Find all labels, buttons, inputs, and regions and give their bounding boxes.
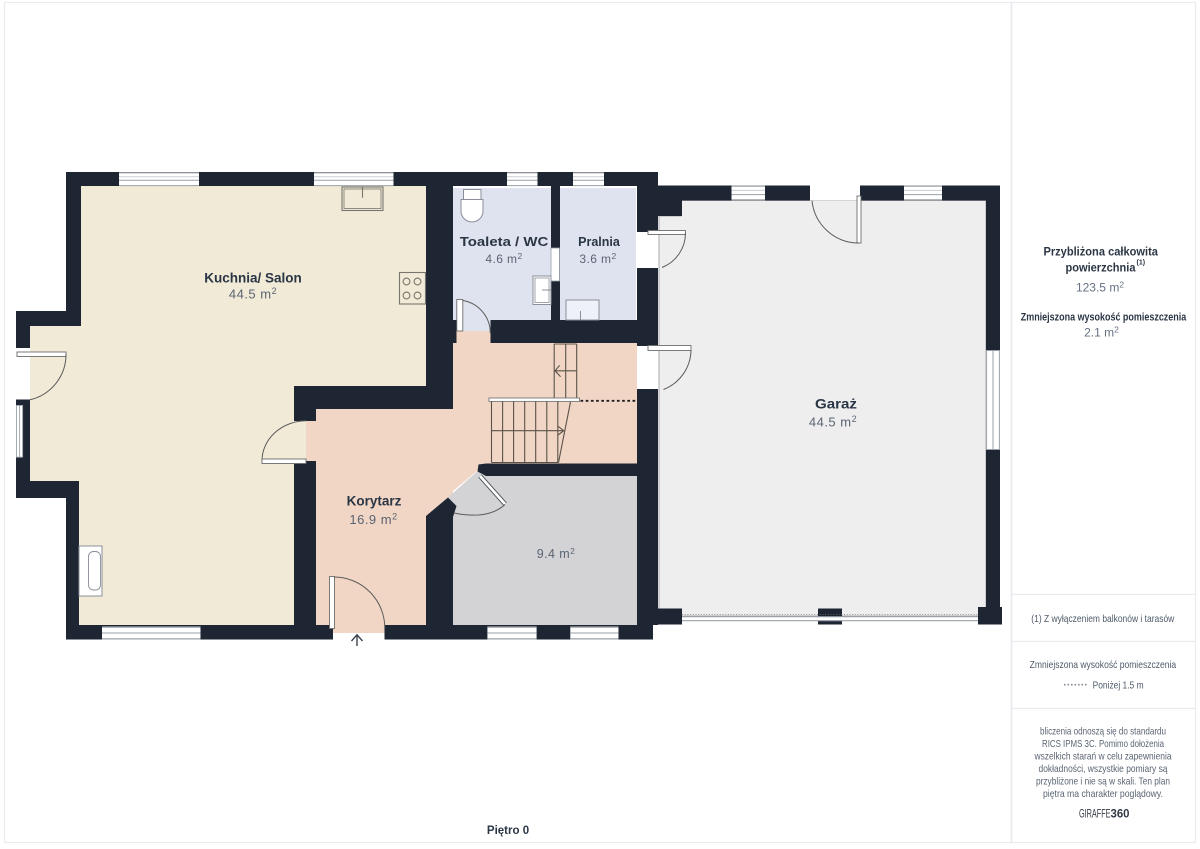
svg-text:GIRAFFE: GIRAFFE [1079, 809, 1111, 821]
svg-text:piętra ma charakter poglądowy.: piętra ma charakter poglądowy. [1043, 788, 1163, 800]
svg-text:wszelkich starań w celu zapewn: wszelkich starań w celu zapewnienia [1034, 751, 1172, 763]
svg-text:123.5 m2: 123.5 m2 [1076, 279, 1124, 294]
svg-text:(1): (1) [1137, 260, 1146, 267]
svg-text:9.4 m2: 9.4 m2 [537, 546, 575, 561]
svg-text:Zmniejszona wysokość pomieszcz: Zmniejszona wysokość pomieszczenia [1030, 659, 1177, 671]
svg-text:Kuchnia/ Salon: Kuchnia/ Salon [204, 271, 302, 286]
svg-text:Przybliżona całkowita: Przybliżona całkowita [1043, 244, 1158, 258]
svg-text:Korytarz: Korytarz [347, 494, 402, 509]
svg-text:44.5 m2: 44.5 m2 [229, 286, 277, 302]
svg-text:bliczenia odnoszą się do stand: bliczenia odnoszą się do standardu [1040, 726, 1166, 738]
svg-text:Toaleta / WC: Toaleta / WC [460, 235, 549, 249]
svg-text:Pralnia: Pralnia [578, 235, 621, 249]
svg-text:16.9 m2: 16.9 m2 [349, 512, 397, 528]
svg-text:Zmniejszona wysokość pomieszcz: Zmniejszona wysokość pomieszczenia [1021, 312, 1187, 324]
svg-text:44.5 m2: 44.5 m2 [809, 414, 857, 430]
svg-text:3.6 m2: 3.6 m2 [579, 251, 616, 266]
svg-text:Piętro 0: Piętro 0 [487, 825, 529, 837]
svg-text:Garaż: Garaż [815, 397, 857, 412]
svg-text:dokładności, wszystkie pomiary: dokładności, wszystkie pomiary są [1039, 763, 1168, 775]
svg-text:RICS IPMS 3C. Pomimo dołożenia: RICS IPMS 3C. Pomimo dołożenia [1042, 738, 1164, 750]
svg-text:(1) Z wyłączeniem balkonów i t: (1) Z wyłączeniem balkonów i tarasów [1031, 613, 1174, 625]
svg-text:przybliżone i nie są w skali.: przybliżone i nie są w skali. Ten plan [1036, 776, 1170, 788]
svg-text:powierzchnia: powierzchnia [1066, 260, 1136, 274]
svg-text:Poniżej 1.5 m: Poniżej 1.5 m [1093, 679, 1144, 691]
svg-text:4.6 m2: 4.6 m2 [485, 251, 522, 266]
svg-text:2.1 m2: 2.1 m2 [1084, 325, 1119, 340]
svg-text:360: 360 [1111, 809, 1130, 821]
